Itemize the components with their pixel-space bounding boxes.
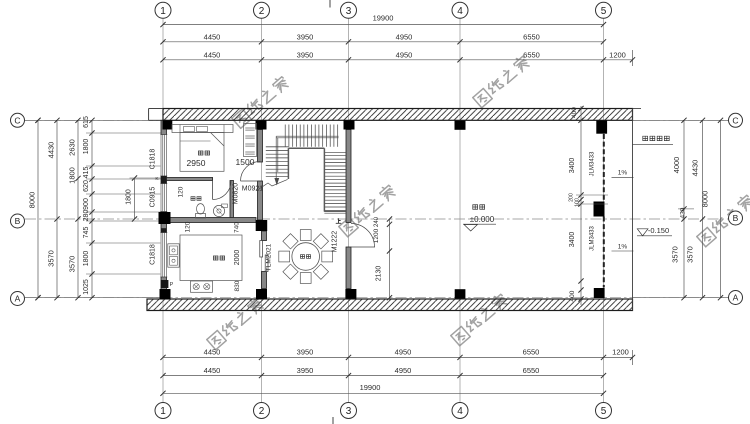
svg-text:1800: 1800 [68,167,77,184]
svg-text:B: B [15,216,21,226]
svg-text:4: 4 [457,6,463,17]
svg-text:4450: 4450 [204,348,221,357]
svg-text:415: 415 [83,167,90,179]
svg-text:8000: 8000 [28,192,37,209]
svg-text:3: 3 [346,406,352,417]
svg-text:1%: 1% [618,244,628,251]
svg-text:4950: 4950 [396,32,413,41]
svg-text:4950: 4950 [395,366,412,375]
svg-text:4450: 4450 [204,32,221,41]
svg-text:6550: 6550 [523,32,540,41]
svg-text:1: 1 [160,406,166,417]
svg-text:1200: 1200 [609,50,626,59]
svg-text:3400: 3400 [569,232,576,248]
svg-text:740: 740 [234,222,241,233]
svg-text:5: 5 [601,6,607,17]
svg-text:900: 900 [83,198,90,210]
svg-text:6550: 6550 [523,348,540,357]
svg-text:745: 745 [83,227,90,239]
svg-text:1800: 1800 [83,251,90,267]
svg-text:2950: 2950 [187,158,206,168]
svg-text:280: 280 [83,210,90,222]
svg-text:3400: 3400 [569,158,576,174]
svg-text:8000: 8000 [701,191,710,208]
svg-text:4950: 4950 [396,50,413,59]
svg-text:P: P [170,282,174,288]
svg-text:2: 2 [259,406,265,417]
svg-text:C: C [14,115,20,125]
svg-text:A: A [15,294,21,304]
svg-text:1800: 1800 [126,189,133,205]
svg-text:JLM3433: JLM3433 [590,151,596,176]
svg-text:1%: 1% [618,170,628,177]
svg-text:400: 400 [571,107,578,118]
svg-text:620: 620 [83,180,90,192]
svg-text:3950: 3950 [297,366,314,375]
svg-text:C1818: C1818 [150,244,157,265]
svg-text:1025: 1025 [83,279,90,295]
svg-text:TLM2021: TLM2021 [266,243,273,271]
svg-text:19900: 19900 [360,383,381,392]
svg-text:3950: 3950 [297,348,314,357]
svg-text:-0.150: -0.150 [648,226,669,235]
svg-text:4450: 4450 [204,50,221,59]
svg-text:6550: 6550 [523,366,540,375]
svg-text:3950: 3950 [297,50,314,59]
svg-text:3570: 3570 [68,256,77,273]
svg-text:3570: 3570 [671,246,680,263]
svg-text:400: 400 [569,290,576,301]
svg-text:4950: 4950 [395,348,412,357]
svg-text:2: 2 [259,6,265,17]
svg-text:5: 5 [601,406,607,417]
svg-text:4430: 4430 [47,142,56,159]
svg-text:19900: 19900 [373,14,394,23]
svg-text:100: 100 [575,198,581,207]
svg-text:120: 120 [178,186,185,197]
svg-text:3570: 3570 [686,246,695,263]
svg-text:1800: 1800 [83,139,90,155]
svg-text:M0820: M0820 [233,183,240,205]
svg-text:JLM3433: JLM3433 [590,225,596,250]
svg-text:4: 4 [457,406,463,417]
svg-text:1: 1 [160,6,166,17]
svg-text:A: A [733,293,739,303]
svg-text:4450: 4450 [204,366,221,375]
svg-text:830: 830 [234,280,241,291]
svg-text:2630: 2630 [68,139,77,156]
svg-text:M0921: M0921 [242,186,264,193]
svg-text:2000: 2000 [234,250,241,266]
svg-text:430: 430 [680,207,687,218]
svg-text:1200: 1200 [373,228,380,243]
svg-text:3570: 3570 [47,250,56,267]
svg-text:120: 120 [185,221,192,232]
svg-text:240: 240 [374,216,380,227]
svg-text:±0.000: ±0.000 [470,215,495,224]
svg-text:4000: 4000 [672,157,681,174]
svg-text:6550: 6550 [523,50,540,59]
svg-text:1200: 1200 [612,348,629,357]
svg-text:B: B [733,213,739,223]
svg-text:615: 615 [83,116,90,128]
svg-text:C1818: C1818 [150,149,157,170]
svg-text:1500: 1500 [236,157,255,167]
svg-text:4430: 4430 [691,160,700,177]
svg-text:2130: 2130 [376,266,383,282]
svg-text:3950: 3950 [297,32,314,41]
svg-text:3: 3 [346,6,352,17]
svg-text:C0915: C0915 [150,187,157,208]
svg-text:C: C [732,115,738,125]
svg-text:M1222: M1222 [332,231,339,253]
